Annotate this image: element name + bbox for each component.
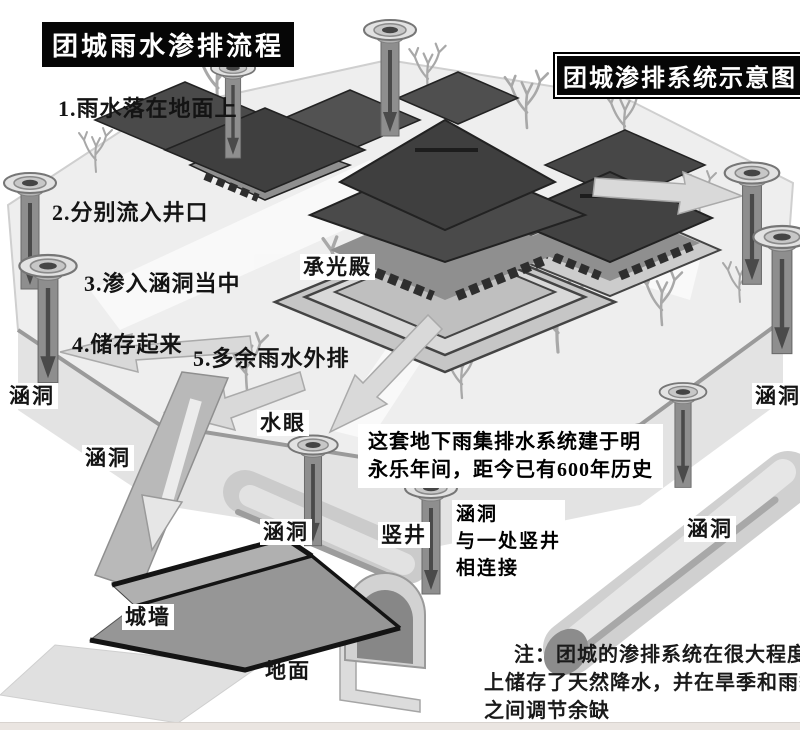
culvert-label-right-lower: 涵洞 [684,516,736,542]
flow-title: 团城雨水渗排流程 [42,22,294,67]
image-edge-strip [0,722,800,730]
footer-note-line2: 上储存了天然降水，并在旱季和雨季 [484,669,800,697]
history-note: 这套地下雨集排水系统建于明 永乐年间，距今已有600年历史 [358,424,663,488]
step-4: 4.储存起来 [72,332,183,357]
culvert-label-left-lower: 涵洞 [82,445,134,471]
connection-note-line3: 相连接 [456,555,561,582]
connection-note-line1: 涵洞 [456,501,561,528]
step-1: 1.雨水落在地面上 [58,96,238,121]
history-note-line1: 这套地下雨集排水系统建于明 [368,428,653,456]
step-5: 5.多余雨水外排 [193,346,350,371]
footer-note-line1: 注：团城的渗排系统在很大程度 [514,641,800,669]
main-hall-label: 承光殿 [300,254,375,280]
connection-note-line2: 与一处竖井 [456,528,561,555]
diagram-title: 团城渗排系统示意图 [553,52,800,99]
step-2: 2.分别流入井口 [52,200,209,225]
culvert-label-right: 涵洞 [752,383,800,409]
step-3: 3.渗入涵洞当中 [84,271,241,296]
wall-label: 城墙 [122,604,174,630]
ground-label: 地面 [262,658,314,684]
tuancheng-drainage-diagram: 团城雨水渗排流程 团城渗排系统示意图 1.雨水落在地面上 2.分别流入井口 3.… [0,0,800,730]
connection-note: 涵洞 与一处竖井 相连接 [452,500,565,583]
history-note-line2: 永乐年间，距今已有600年历史 [368,456,653,484]
culvert-label-left: 涵洞 [6,383,58,409]
shaft-label: 竖井 [378,522,430,548]
footer-note-line3: 之间调节余缺 [484,697,800,725]
culvert-label-bottom: 涵洞 [260,519,312,545]
footer-note: 注：团城的渗排系统在很大程度 上储存了天然降水，并在旱季和雨季 之间调节余缺 [484,641,800,725]
water-eye-label: 水眼 [257,410,309,436]
